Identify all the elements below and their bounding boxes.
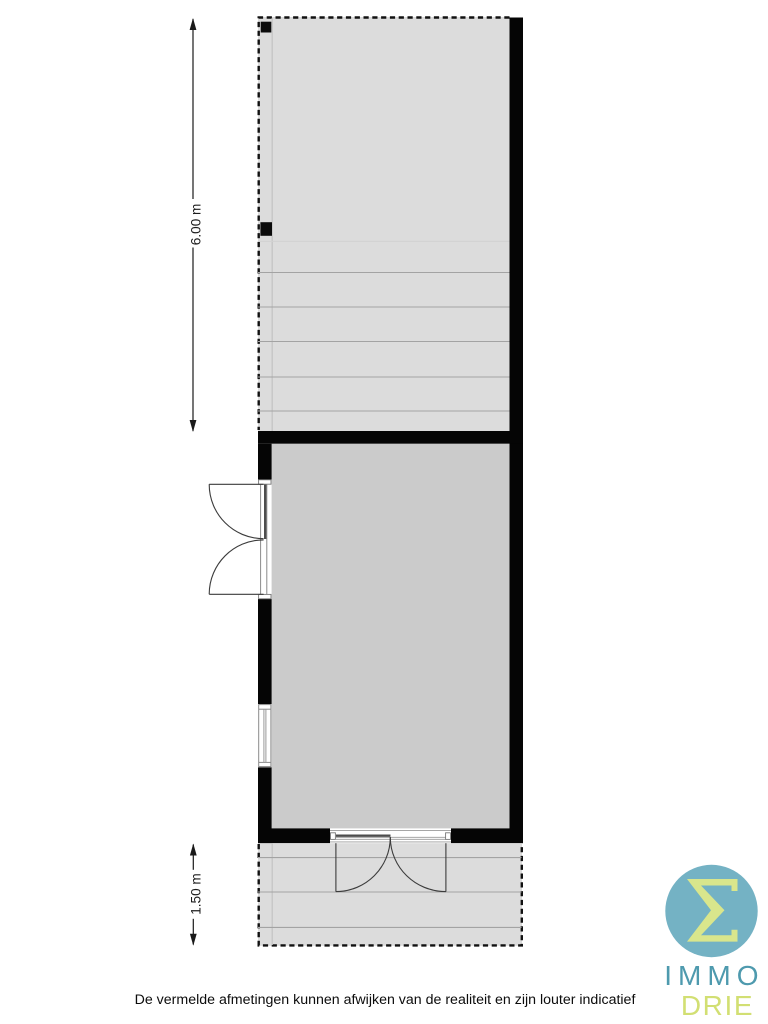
svg-text:DRIE: DRIE: [681, 990, 754, 1021]
svg-text:IMMO: IMMO: [664, 960, 764, 991]
svg-text:1.50 m: 1.50 m: [188, 873, 203, 915]
svg-text:6.00 m: 6.00 m: [188, 204, 203, 246]
svg-text:De vermelde afmetingen kunnen: De vermelde afmetingen kunnen afwijken v…: [135, 992, 636, 1008]
